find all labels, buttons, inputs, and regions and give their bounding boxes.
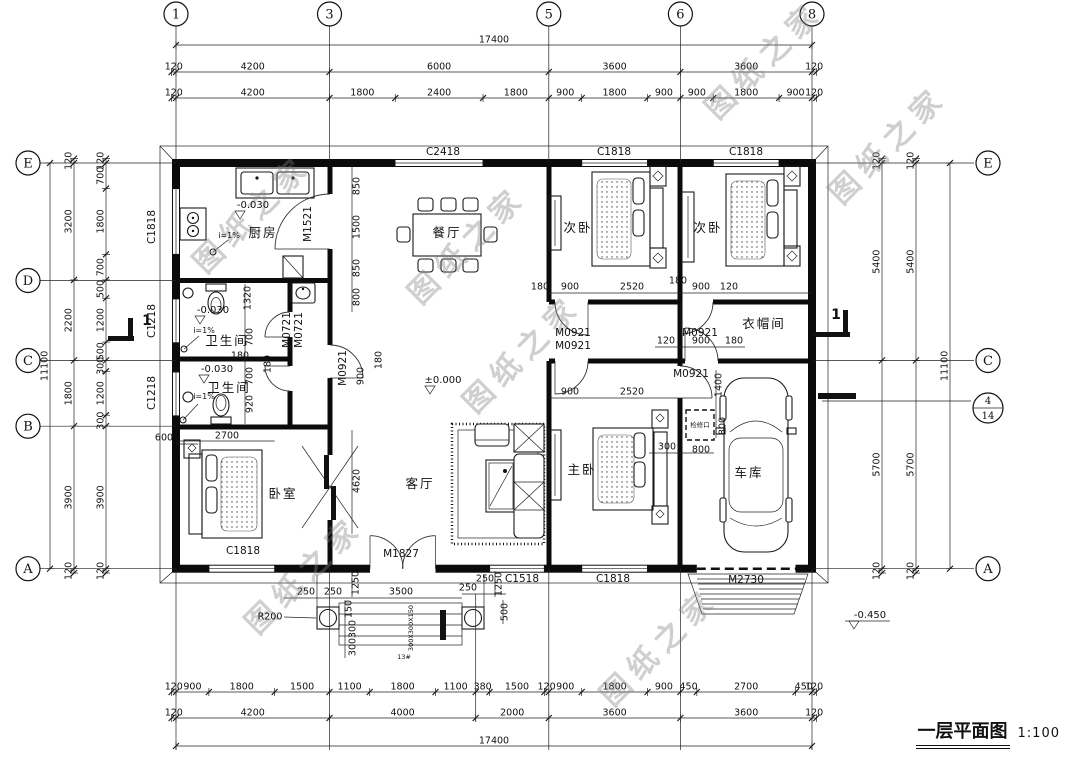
dimension-label: 120: [64, 152, 75, 170]
dimension-label: 120: [805, 88, 823, 99]
dimension-label: 1500: [290, 682, 314, 693]
dimension-label: 1800: [350, 88, 374, 99]
section-number: 1: [142, 314, 152, 328]
opening-tag: C1818: [597, 147, 631, 158]
dimension-label: 3600: [734, 708, 758, 719]
opening-tag: C1818: [596, 574, 630, 585]
opening-tag: M0721: [282, 312, 293, 348]
dimension-label: 6000: [427, 62, 451, 73]
dimension-label: 300: [348, 638, 358, 656]
opening-tag: M2730: [728, 575, 764, 586]
opening-tag: M0721: [294, 312, 305, 348]
dimension-label: 120: [805, 62, 823, 73]
level-label: -0.030: [201, 365, 233, 375]
dimension-chain: 1209001800150011001800110038015001209001…: [165, 682, 823, 697]
dimension-chain: 12054005700120: [906, 152, 921, 580]
opening-tag: C1518: [505, 574, 539, 585]
dimension-label: 4000: [391, 708, 415, 719]
dimension-label: 900: [692, 282, 710, 292]
dimension-label: 1800: [504, 88, 528, 99]
note-label: 13#: [397, 654, 411, 661]
dimension-label: 500: [500, 603, 510, 621]
room-label: 卫生间: [205, 335, 249, 348]
dimension-label: 120: [805, 682, 823, 693]
dimension-label: 2520: [620, 387, 644, 397]
dimension-label: 11100: [40, 351, 51, 381]
dimension-label: 250: [459, 583, 477, 593]
dimension-chain: 12054005700120: [872, 152, 887, 580]
dimension-label: 700: [96, 258, 107, 276]
dimension-label: 250: [324, 587, 342, 597]
room-label: 厨房: [248, 227, 277, 240]
dimension-label: 1500: [352, 215, 362, 239]
dimension-label: 120: [906, 152, 917, 170]
dimension-label: 2200: [64, 308, 75, 332]
dimension-label: 1800: [230, 682, 254, 693]
dimension-label: 3900: [96, 485, 107, 509]
level-label: -0.450: [854, 611, 886, 621]
dimension-label: 300: [96, 357, 107, 375]
note-label: 检修口: [690, 422, 710, 429]
svg-text:A: A: [22, 562, 33, 577]
washbasin-symbol: [291, 283, 315, 303]
svg-text:14: 14: [982, 411, 995, 422]
dimension-label: 250: [476, 574, 494, 584]
dimension-label: 120: [165, 62, 183, 73]
dimension-label: 800: [692, 445, 710, 455]
dimension-label: 700: [245, 367, 255, 385]
bed-symbol: [726, 166, 800, 266]
bed-symbol: [184, 440, 262, 538]
drawing-scale: 1:100: [1018, 726, 1060, 741]
dimension-chain: 17400: [173, 35, 815, 50]
svg-text:E: E: [983, 157, 993, 172]
dimension-label: 900: [655, 88, 673, 99]
bed-symbol: [593, 410, 668, 524]
dimension-label: 1250: [494, 572, 504, 596]
dimension-label: 11100: [940, 351, 951, 381]
dimension-label: 380: [474, 682, 492, 693]
dimension-label: 120: [96, 562, 107, 580]
slope-label: i=1%: [218, 232, 240, 240]
dimension-label: 120: [872, 562, 883, 580]
dimension-label: 2400: [427, 88, 451, 99]
level-label: ±0.000: [424, 376, 461, 386]
dimension-label: 1800: [391, 682, 415, 693]
room-label: 次卧: [563, 222, 592, 235]
svg-text:6: 6: [676, 8, 684, 23]
dimension-label: 5400: [906, 250, 917, 274]
dimension-label: 250: [297, 587, 315, 597]
opening-tag: C1818: [147, 210, 158, 244]
dimension-label: 900: [786, 88, 804, 99]
dimension-label: 180: [374, 351, 384, 369]
dimension-label: 180: [669, 276, 687, 286]
dimension-label: 1500: [505, 682, 529, 693]
dimension-label: 4200: [241, 62, 265, 73]
opening-tag: M0921: [673, 369, 709, 380]
title-block: 一层平面图1:100: [916, 717, 1060, 749]
opening-tag: C1818: [729, 147, 763, 158]
dimension-label: 150: [344, 600, 354, 618]
dimension-chain: 11100: [40, 160, 55, 572]
dimension-label: 920: [245, 395, 255, 413]
dimension-label: 800: [718, 417, 728, 435]
opening-tag: C1218: [147, 376, 158, 410]
dimension-label: 1100: [338, 682, 362, 693]
dimension-label: 300: [96, 412, 107, 430]
dimension-label: 3500: [389, 587, 413, 597]
dimension-label: 600: [155, 433, 173, 443]
room-label: 主卧: [567, 464, 596, 477]
room-label: 餐厅: [432, 227, 461, 240]
svg-text:D: D: [23, 274, 33, 289]
dimension-label: 900: [655, 682, 673, 693]
room-label: 车库: [734, 467, 763, 480]
dimension-label: 900: [561, 387, 579, 397]
floor-plan-page: 1740012042006000360036001201204200180024…: [0, 0, 1074, 763]
svg-text:5: 5: [545, 8, 553, 23]
dimension-label: 180: [231, 351, 249, 361]
svg-text:C: C: [983, 354, 993, 369]
dimension-label: 1250: [351, 571, 361, 595]
dimension-label: 1800: [64, 381, 75, 405]
level-label: -0.030: [237, 201, 269, 211]
dimension-label: 700: [245, 328, 255, 346]
dimension-label: 5700: [872, 452, 883, 476]
dimension-label: 120: [165, 682, 183, 693]
room-label: 客厅: [405, 478, 434, 491]
dimension-chain: 1203200220018003900120: [64, 152, 79, 580]
dimension-label: 900: [556, 682, 574, 693]
dimension-label: R200: [258, 612, 283, 622]
dimension-label: 1800: [96, 209, 107, 233]
dimension-label: 4620: [352, 469, 362, 493]
dimension-label: 500: [96, 280, 107, 298]
svg-text:E: E: [23, 157, 33, 172]
dimension-label: 17400: [479, 736, 509, 747]
svg-text:3: 3: [325, 8, 333, 23]
svg-text:C: C: [23, 354, 33, 369]
room-label: 卧室: [268, 488, 297, 501]
opening-tag: C2418: [426, 147, 460, 158]
dimension-label: 120: [165, 708, 183, 719]
room-label: 衣帽间: [742, 318, 786, 331]
dimension-label: 2700: [215, 431, 239, 441]
dimension-chain: 11100: [940, 160, 955, 572]
svg-text:4: 4: [985, 396, 991, 407]
opening-tag: M1521: [303, 206, 314, 242]
dimension-label: 450: [680, 682, 698, 693]
opening-tag: M1827: [383, 549, 419, 560]
dimension-label: 1100: [443, 682, 467, 693]
dimension-label: 2700: [734, 682, 758, 693]
dimension-label: 5400: [872, 250, 883, 274]
dimension-label: 17400: [479, 35, 509, 46]
slope-label: i=1%: [193, 393, 215, 401]
dimension-label: 120: [64, 562, 75, 580]
dimension-label: 5700: [906, 452, 917, 476]
dimension-label: 900: [561, 282, 579, 292]
svg-text:1: 1: [172, 8, 180, 23]
dimension-chain: 1207001800700500120050030012003003900120: [96, 152, 111, 580]
dimension-chain: 17400: [173, 736, 815, 751]
opening-tag: M0921: [338, 350, 349, 386]
opening-tag: M0921: [555, 341, 591, 352]
dimension-label: 2520: [620, 282, 644, 292]
dimension-label: 1200: [96, 308, 107, 332]
dimension-label: 900: [183, 682, 201, 693]
dimension-label: 120: [657, 336, 675, 346]
dimension-label: 120: [165, 88, 183, 99]
opening-tag: C1818: [226, 546, 260, 557]
dimension-label: 1800: [602, 88, 626, 99]
dimension-label: 1400: [714, 373, 724, 397]
dimension-label: 4200: [241, 708, 265, 719]
dimension-label: 120: [906, 562, 917, 580]
dimension-label: 850: [352, 259, 362, 277]
dimension-label: 900: [556, 88, 574, 99]
opening-tag: M0921: [555, 328, 591, 339]
dimension-label: 180: [725, 336, 743, 346]
fridge-symbol: [283, 256, 303, 278]
dimension-label: 850: [352, 177, 362, 195]
dimension-label: 4200: [241, 88, 265, 99]
svg-text:A: A: [982, 562, 993, 577]
dimension-label: 300: [658, 442, 676, 452]
svg-text:B: B: [23, 420, 33, 435]
dimension-label: 120: [720, 282, 738, 292]
dimension-label: 180: [531, 282, 549, 292]
dimension-label: 3600: [602, 62, 626, 73]
level-label: -0.030: [197, 306, 229, 316]
dimension-label: 120: [805, 708, 823, 719]
dimension-label: 700: [96, 167, 107, 185]
slope-label: i=1%: [193, 327, 215, 335]
dimension-label: 900: [356, 367, 366, 385]
dimension-label: 800: [352, 288, 362, 306]
bed-symbol: [592, 166, 666, 268]
dimension-label: 1320: [243, 286, 253, 310]
dimension-label: 180: [263, 355, 273, 373]
section-number: 1: [831, 308, 841, 322]
room-label: 次卧: [693, 222, 722, 235]
dimension-label: 2000: [500, 708, 524, 719]
drawing-title: 一层平面图: [916, 717, 1010, 749]
coffee-table-symbol: [486, 460, 516, 512]
dimension-label: 1200: [96, 381, 107, 405]
dimension-label: 3200: [64, 209, 75, 233]
dimension-label: 3900: [64, 485, 75, 509]
dimension-chain: 12042004000200036003600120: [165, 708, 823, 723]
dimension-label: 900: [692, 336, 710, 346]
note-label: 300X300X150: [408, 605, 415, 651]
dimension-label: 300: [348, 620, 358, 638]
dimension-label: 120: [538, 682, 556, 693]
